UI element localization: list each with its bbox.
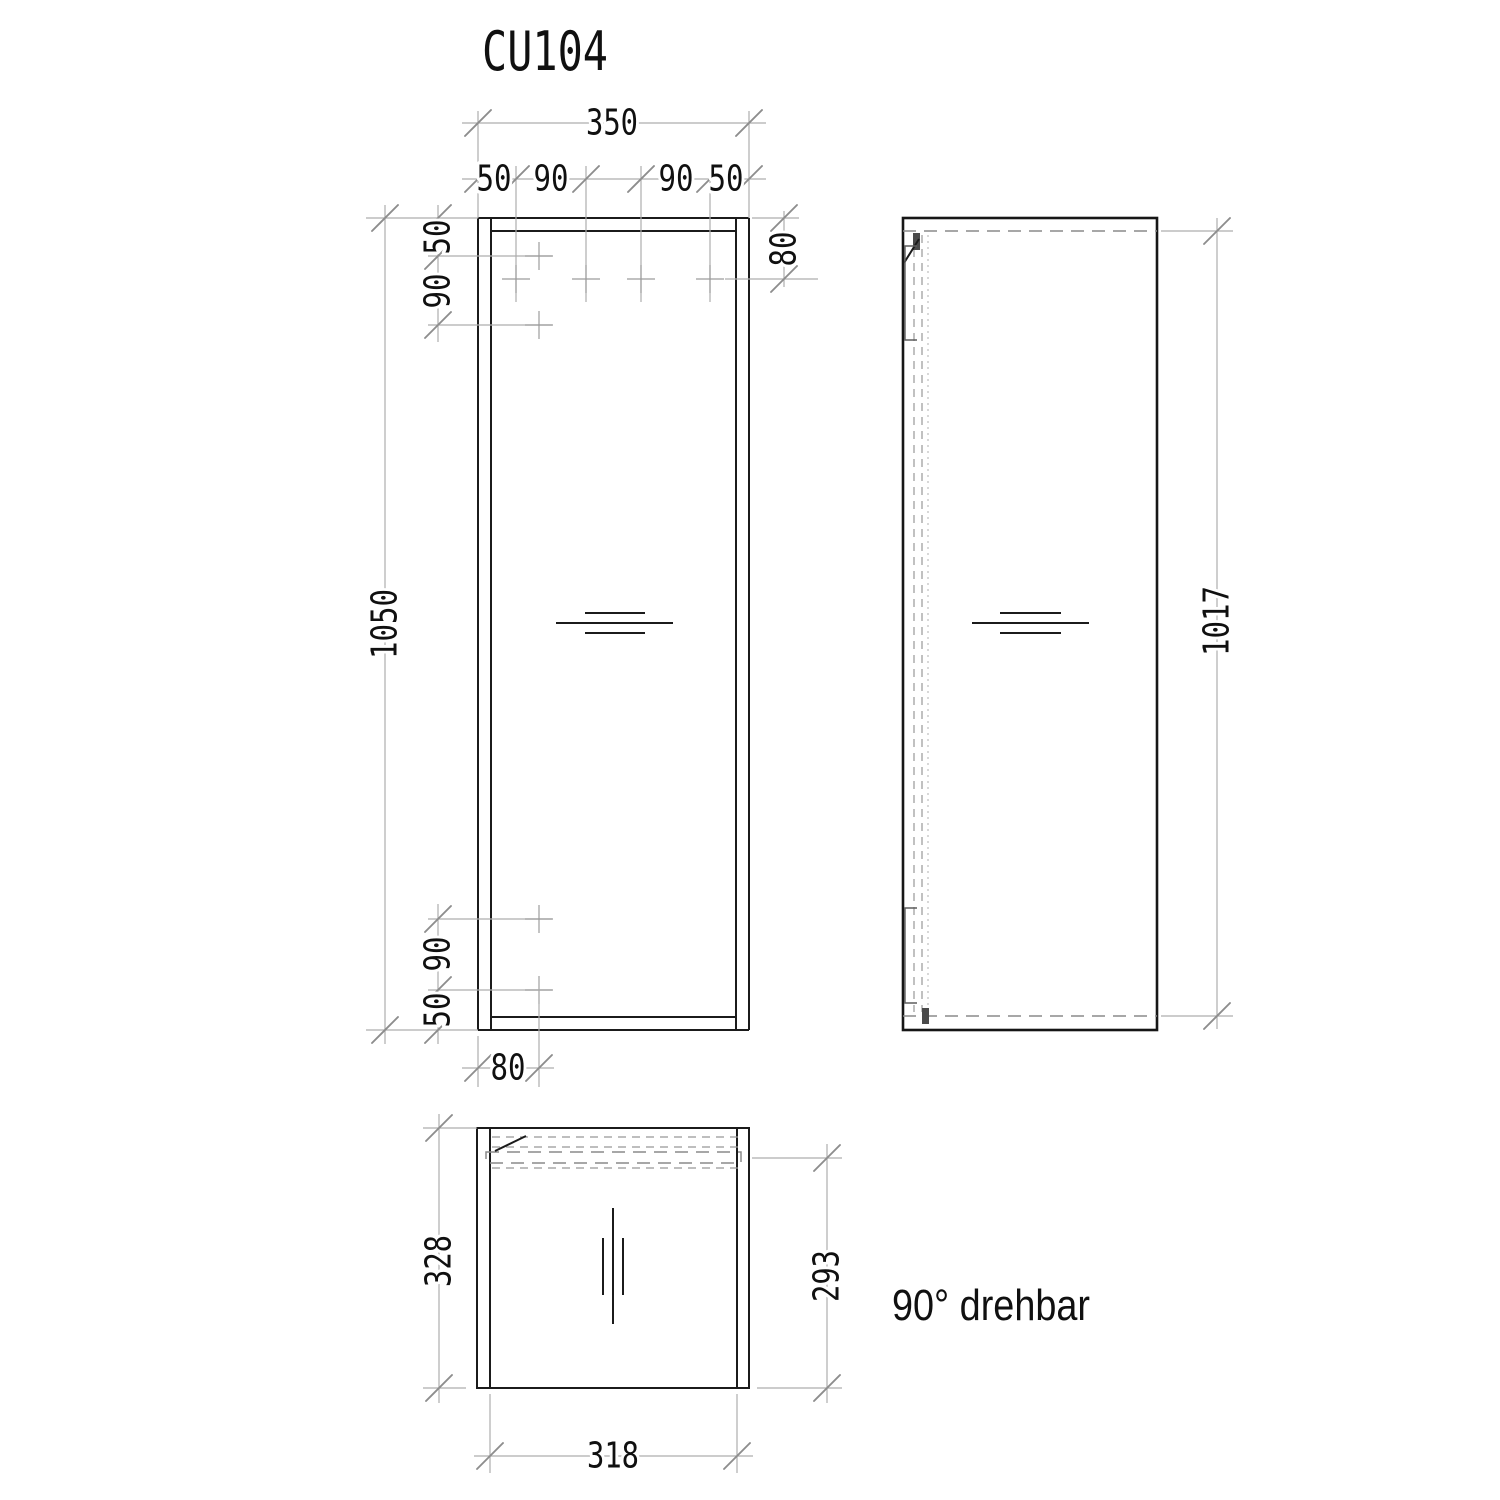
drill-hole-markers [428, 166, 818, 1004]
dim-door-swing-depth: 293 [752, 1144, 848, 1403]
hinge-bottom [905, 908, 929, 1024]
rotation-note: 90° drehbar [892, 1281, 1090, 1330]
dim-label-offset-50-left: 50 [477, 159, 512, 200]
top-view: 328 293 318 [419, 1114, 848, 1477]
hinge-top [904, 233, 920, 340]
dim-label-overall-width: 350 [586, 103, 638, 144]
hinge-diagonal [495, 1136, 526, 1151]
dim-left-bottom-hole-offsets: 90 50 [418, 904, 459, 1044]
dim-label-door-swing-depth: 293 [807, 1250, 848, 1302]
dim-label-offset-90-right: 90 [659, 159, 694, 200]
dim-label-left-bottom-50: 50 [418, 993, 459, 1028]
door-handle-symbol-side [972, 613, 1089, 633]
dim-label-left-top-90: 90 [418, 274, 459, 309]
dim-inner-width: 318 [474, 1394, 753, 1477]
drawing-sheet: CU104 [0, 0, 1500, 1500]
drawing-title: CU104 [482, 20, 608, 83]
door-handle-symbol-top [603, 1208, 623, 1324]
dim-top-hole-offsets: 50 90 90 50 [462, 159, 766, 200]
dim-label-col-offset-80: 80 [491, 1048, 526, 1089]
dim-label-left-top-50: 50 [418, 220, 459, 255]
dim-label-row-offset-80: 80 [764, 232, 805, 267]
dim-bottom-hole-col-offset: 80 [462, 978, 554, 1089]
dim-overall-height: 1050 [365, 205, 479, 1044]
dim-label-overall-height: 1050 [365, 589, 406, 659]
door-hidden-edge-top [486, 1136, 741, 1168]
dim-label-door-height: 1017 [1197, 586, 1238, 656]
front-view: 350 50 90 90 50 1050 50 90 [365, 103, 819, 1089]
door-handle-symbol [556, 613, 673, 633]
dim-label-left-bottom-90: 90 [418, 937, 459, 972]
dim-label-overall-depth: 328 [419, 1235, 460, 1287]
dim-door-height: 1017 [1161, 218, 1238, 1029]
dim-overall-depth: 328 [419, 1114, 478, 1403]
dim-label-offset-50-right: 50 [709, 159, 744, 200]
side-view: 1017 [903, 218, 1238, 1030]
dim-label-inner-width: 318 [587, 1436, 639, 1477]
dim-label-offset-90-left: 90 [534, 159, 569, 200]
dim-left-top-hole-offsets: 50 90 [418, 205, 459, 342]
